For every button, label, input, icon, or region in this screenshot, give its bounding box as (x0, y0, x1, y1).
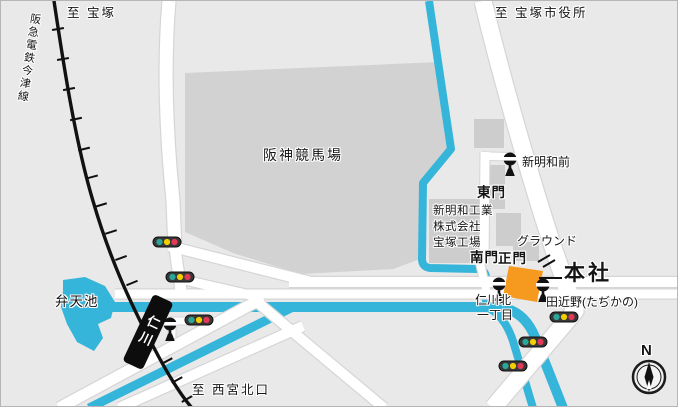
traffic-light-icon (185, 315, 213, 325)
label-east-gate: 東門 (477, 186, 506, 200)
map-canvas (1, 1, 678, 407)
label-tajikano: 田近野(たぢかの) (546, 296, 638, 309)
traffic-light-icon (519, 337, 547, 347)
label-to-nishinomiya: 至 西宮北口 (192, 384, 270, 397)
label-company-line2: 株式会社 (433, 221, 481, 233)
traffic-light-icon (499, 361, 527, 371)
label-to-city-hall: 至 宝塚市役所 (495, 7, 587, 20)
traffic-light-icon (550, 312, 578, 322)
label-racecourse: 阪神競馬場 (263, 148, 343, 163)
traffic-light-icon (166, 272, 194, 282)
access-map: 至 宝塚 阪急電鉄今津線 至 宝塚市役所 阪神競馬場 弁天池 新明和前 東門 新… (0, 0, 678, 407)
label-nigawakita-2: 一丁目 (477, 309, 513, 322)
label-company-line3: 宝塚工場 (433, 237, 481, 249)
label-main-gate: 正門 (498, 252, 527, 266)
label-north: N (641, 343, 652, 359)
label-nigawakita-1: 仁川北 (475, 294, 511, 307)
label-to-takarazuka: 至 宝塚 (67, 7, 116, 20)
benten-pond (61, 277, 115, 351)
bus-stop-icon (503, 153, 517, 177)
label-ground: グラウンド (517, 235, 577, 248)
traffic-light-icon (153, 237, 181, 247)
label-benten-pond: 弁天池 (55, 295, 99, 309)
label-company-line1: 新明和工業 (433, 205, 493, 217)
label-south-gate: 南門 (470, 251, 499, 265)
racecourse-area (185, 62, 451, 274)
label-shinmeiwa-mae: 新明和前 (522, 156, 570, 169)
compass-north-icon (633, 361, 665, 393)
label-head-office: 本社 (564, 263, 612, 285)
